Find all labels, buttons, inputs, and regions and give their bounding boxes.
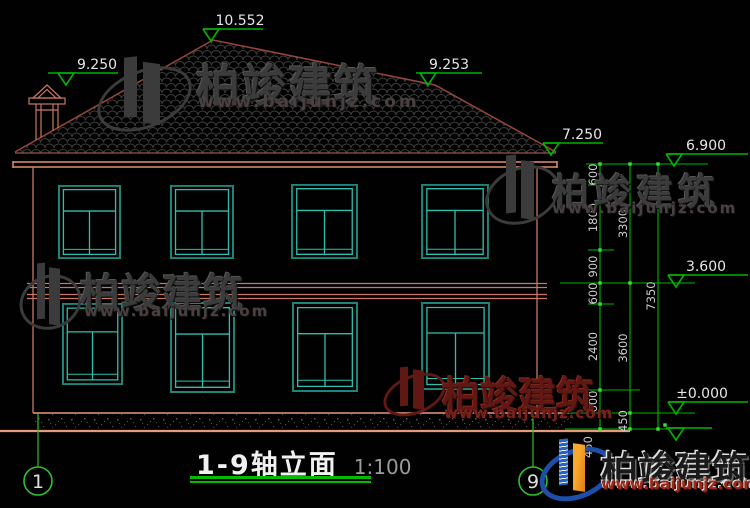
- dimension-labels: 600 1800 900 600 2400 600 450 3300 3600 …: [581, 164, 658, 458]
- dim-value: 450: [581, 436, 595, 458]
- level-value: 6.900: [686, 138, 726, 154]
- dim-value: 600: [586, 391, 600, 413]
- level-ridge: 10.552: [203, 13, 265, 41]
- window: [292, 185, 357, 258]
- cad-elevation-drawing: 10.552 9.250 9.253 7.250 6.900 3.600: [0, 0, 750, 508]
- level-roof-right: 9.253: [416, 57, 482, 85]
- dim-value: 450: [616, 410, 630, 432]
- floor-band: [27, 284, 547, 299]
- level-ground: ±0.000: [668, 386, 748, 414]
- level-value: ±0.000: [676, 386, 728, 402]
- elevation-linework: 10.552 9.250 9.253 7.250 6.900 3.600: [0, 0, 750, 508]
- dim-value: 600: [586, 283, 600, 305]
- dim-value: 7350: [644, 281, 658, 310]
- dim-value: 3300: [616, 209, 630, 238]
- eave-fascia: [13, 161, 557, 168]
- level-value: 3.600: [686, 259, 726, 275]
- title-underline: [190, 476, 371, 479]
- ground-line: [0, 413, 630, 431]
- windows: [59, 185, 489, 392]
- level-value: 7.250: [562, 127, 602, 143]
- dimension-chains: 600 1800 900 600 2400 600 450 3300 3600 …: [560, 162, 708, 458]
- level-chimney: 9.250: [48, 57, 118, 85]
- title-underline: [190, 481, 371, 484]
- window: [293, 303, 357, 391]
- axis-bubble-right: 9: [527, 471, 539, 493]
- level-eave: 6.900: [666, 138, 748, 166]
- window: [59, 186, 120, 258]
- window: [171, 303, 234, 392]
- window: [422, 303, 489, 389]
- dim-value: 900: [586, 256, 600, 278]
- level-value: 9.250: [77, 57, 117, 73]
- walls: [33, 167, 537, 413]
- dim-value: 1800: [586, 203, 600, 232]
- window: [422, 185, 488, 258]
- window: [63, 304, 122, 384]
- dim-value: 3600: [616, 333, 630, 362]
- dim-value: 600: [586, 164, 600, 186]
- axis-bubble-left: 1: [32, 471, 44, 493]
- window: [171, 186, 233, 258]
- level-value: 10.552: [216, 13, 265, 29]
- level-value: 9.253: [429, 57, 469, 73]
- dim-value: 2400: [586, 332, 600, 361]
- level-below-grade: [666, 428, 712, 440]
